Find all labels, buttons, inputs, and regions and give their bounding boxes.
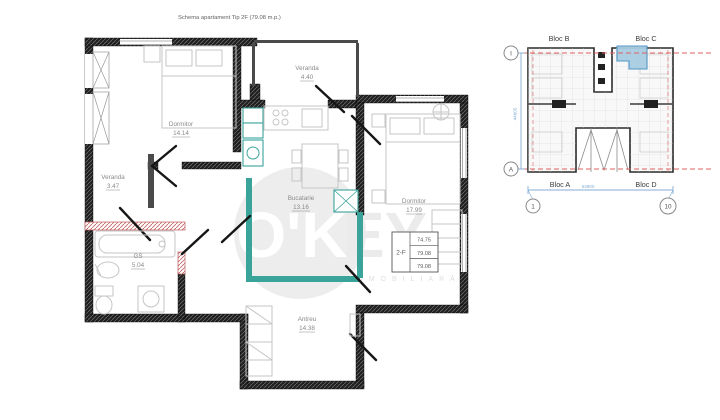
room-label-dormitor-1: Dormitor 14.14 (169, 121, 193, 137)
room-label-gs: GS 5.04 (131, 253, 145, 269)
site-plan: 44600 53800 Bloc B Bloc C Bloc A Bloc D … (504, 34, 712, 214)
svg-text:Bucatarie: Bucatarie (288, 195, 315, 202)
bathroom-fixtures (95, 231, 175, 314)
svg-text:Veranda: Veranda (101, 174, 125, 181)
svg-text:Antreu: Antreu (298, 316, 317, 323)
drawing-title: Schema apartament Tip 2F (79.08 m.p.) (178, 15, 281, 21)
bloc-d-label: Bloc D (635, 180, 656, 189)
room-label-antreu: Antreu 14.38 (298, 316, 317, 332)
watermark-logo-text: O'K (236, 199, 347, 271)
bloc-b-label: Bloc B (549, 34, 570, 43)
bed-symbol-dormitor-1 (144, 46, 236, 128)
svg-text:Dormitor: Dormitor (169, 121, 193, 128)
dimension-horizontal: 53800 (582, 184, 595, 189)
area-value-2: 79.08 (417, 251, 431, 257)
svg-text:Veranda: Veranda (295, 65, 319, 72)
room-label-veranda-1: Veranda 3.47 (101, 174, 125, 190)
apartment-info-table: 2-F 74.75 79.08 79.08 (392, 232, 438, 272)
room-label-veranda-2: Veranda 4.40 (295, 65, 319, 81)
area-value-1: 74.75 (417, 238, 431, 244)
svg-text:14.38: 14.38 (299, 325, 315, 332)
svg-text:5.04: 5.04 (132, 262, 145, 269)
courtyard-braces (578, 128, 628, 172)
svg-text:17.99: 17.99 (406, 207, 422, 214)
svg-text:13.16: 13.16 (293, 204, 309, 211)
axis-marker-a: A (509, 167, 514, 174)
axis-marker-1: 1 (531, 204, 535, 211)
svg-text:GS: GS (133, 253, 142, 260)
svg-text:Dormitor: Dormitor (402, 198, 426, 205)
bloc-a-label: Bloc A (550, 180, 571, 189)
svg-text:3.47: 3.47 (107, 183, 120, 190)
area-value-3: 79.08 (417, 264, 431, 270)
drawing-canvas: O'K EY COMPANIE IMOBILIARĂ Schema aparta… (0, 0, 720, 420)
svg-text:4.40: 4.40 (301, 74, 314, 81)
svg-text:14.14: 14.14 (173, 130, 189, 137)
bloc-c-label: Bloc C (635, 34, 656, 43)
axis-marker-10: 10 (664, 204, 672, 211)
unit-type-cell: 2-F (396, 250, 406, 257)
dimension-vertical: 44600 (513, 107, 518, 120)
floorplan-page: O'K EY COMPANIE IMOBILIARĂ Schema aparta… (0, 0, 720, 420)
axis-marker-i: I (510, 51, 512, 58)
